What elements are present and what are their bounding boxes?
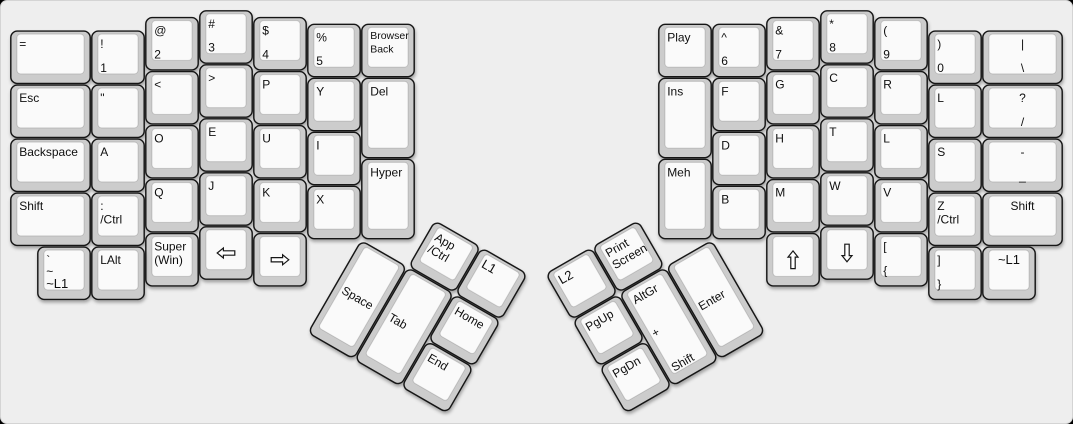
svg-text:Esc: Esc bbox=[19, 91, 39, 105]
svg-text:H: H bbox=[775, 132, 784, 146]
svg-text:X: X bbox=[316, 192, 324, 206]
svg-text:4: 4 bbox=[262, 47, 269, 61]
svg-text:?: ? bbox=[1019, 91, 1026, 105]
svg-text:<: < bbox=[154, 78, 161, 92]
svg-text:I: I bbox=[316, 138, 319, 152]
svg-text:Del: Del bbox=[370, 84, 388, 98]
svg-text:Shift: Shift bbox=[1010, 199, 1035, 213]
svg-text:]: ] bbox=[937, 253, 940, 267]
svg-text:K: K bbox=[262, 186, 270, 200]
svg-text:Hyper: Hyper bbox=[370, 165, 402, 179]
svg-text:Play: Play bbox=[667, 30, 690, 44]
svg-text:E: E bbox=[208, 125, 216, 139]
svg-text:^: ^ bbox=[721, 30, 727, 44]
svg-text:(: ( bbox=[883, 24, 887, 38]
svg-text:S: S bbox=[937, 145, 945, 159]
svg-text:A: A bbox=[100, 145, 108, 159]
svg-text:L: L bbox=[937, 91, 944, 105]
svg-text:LAlt: LAlt bbox=[100, 253, 121, 267]
svg-text:D: D bbox=[721, 138, 730, 152]
svg-text:8: 8 bbox=[829, 41, 836, 55]
svg-text:Backspace: Backspace bbox=[19, 145, 78, 159]
svg-text:$: $ bbox=[262, 24, 269, 38]
svg-text:C: C bbox=[829, 71, 838, 85]
svg-text:=: = bbox=[19, 37, 26, 51]
svg-text:U: U bbox=[262, 132, 271, 146]
svg-text:5: 5 bbox=[316, 54, 323, 68]
svg-text:6: 6 bbox=[721, 54, 728, 68]
svg-text:_: _ bbox=[1018, 169, 1026, 183]
svg-text:W: W bbox=[829, 179, 841, 193]
svg-text:-: - bbox=[1021, 145, 1025, 159]
svg-text:Ins: Ins bbox=[667, 84, 683, 98]
svg-text:T: T bbox=[829, 125, 837, 139]
svg-text:~L1: ~L1 bbox=[998, 252, 1020, 267]
svg-text:B: B bbox=[721, 192, 729, 206]
svg-text:L: L bbox=[883, 132, 890, 146]
svg-text:V: V bbox=[883, 186, 891, 200]
svg-text:7: 7 bbox=[775, 47, 782, 61]
svg-text:%: % bbox=[316, 30, 327, 44]
svg-text:Meh: Meh bbox=[667, 165, 690, 179]
svg-text:G: G bbox=[775, 78, 784, 92]
svg-text:!: ! bbox=[100, 37, 103, 51]
svg-text:@: @ bbox=[154, 24, 166, 38]
svg-text:{: { bbox=[883, 263, 887, 277]
svg-text:Y: Y bbox=[316, 84, 324, 98]
svg-text:): ) bbox=[937, 37, 941, 51]
svg-text:M: M bbox=[775, 186, 785, 200]
svg-text:*: * bbox=[829, 17, 834, 31]
svg-text:&: & bbox=[775, 24, 783, 38]
svg-text:Z: Z bbox=[937, 199, 944, 213]
svg-text:Browser: Browser bbox=[370, 30, 409, 42]
svg-text:F: F bbox=[721, 84, 728, 98]
svg-text:Q: Q bbox=[154, 186, 163, 200]
svg-text:9: 9 bbox=[883, 47, 890, 61]
svg-text:J: J bbox=[208, 179, 214, 193]
svg-text:|: | bbox=[1021, 37, 1024, 51]
svg-text:2: 2 bbox=[154, 47, 161, 61]
svg-text:(Win): (Win) bbox=[154, 253, 183, 267]
svg-text::: : bbox=[100, 199, 103, 213]
svg-text:Super: Super bbox=[154, 240, 186, 254]
svg-text:/Ctrl: /Ctrl bbox=[937, 213, 959, 227]
svg-text:/Ctrl: /Ctrl bbox=[100, 213, 122, 227]
svg-text:1: 1 bbox=[100, 61, 107, 75]
svg-text:Shift: Shift bbox=[19, 199, 44, 213]
svg-text:>: > bbox=[208, 71, 215, 85]
svg-text:}: } bbox=[937, 277, 941, 291]
svg-text:R: R bbox=[883, 78, 892, 92]
svg-text:3: 3 bbox=[208, 41, 215, 55]
svg-text:#: # bbox=[208, 17, 215, 31]
svg-text:~L1: ~L1 bbox=[46, 276, 68, 291]
svg-text:": " bbox=[100, 91, 104, 105]
svg-text:P: P bbox=[262, 78, 270, 92]
svg-text:O: O bbox=[154, 132, 163, 146]
svg-text:0: 0 bbox=[937, 61, 944, 75]
svg-text:Back: Back bbox=[370, 44, 394, 56]
